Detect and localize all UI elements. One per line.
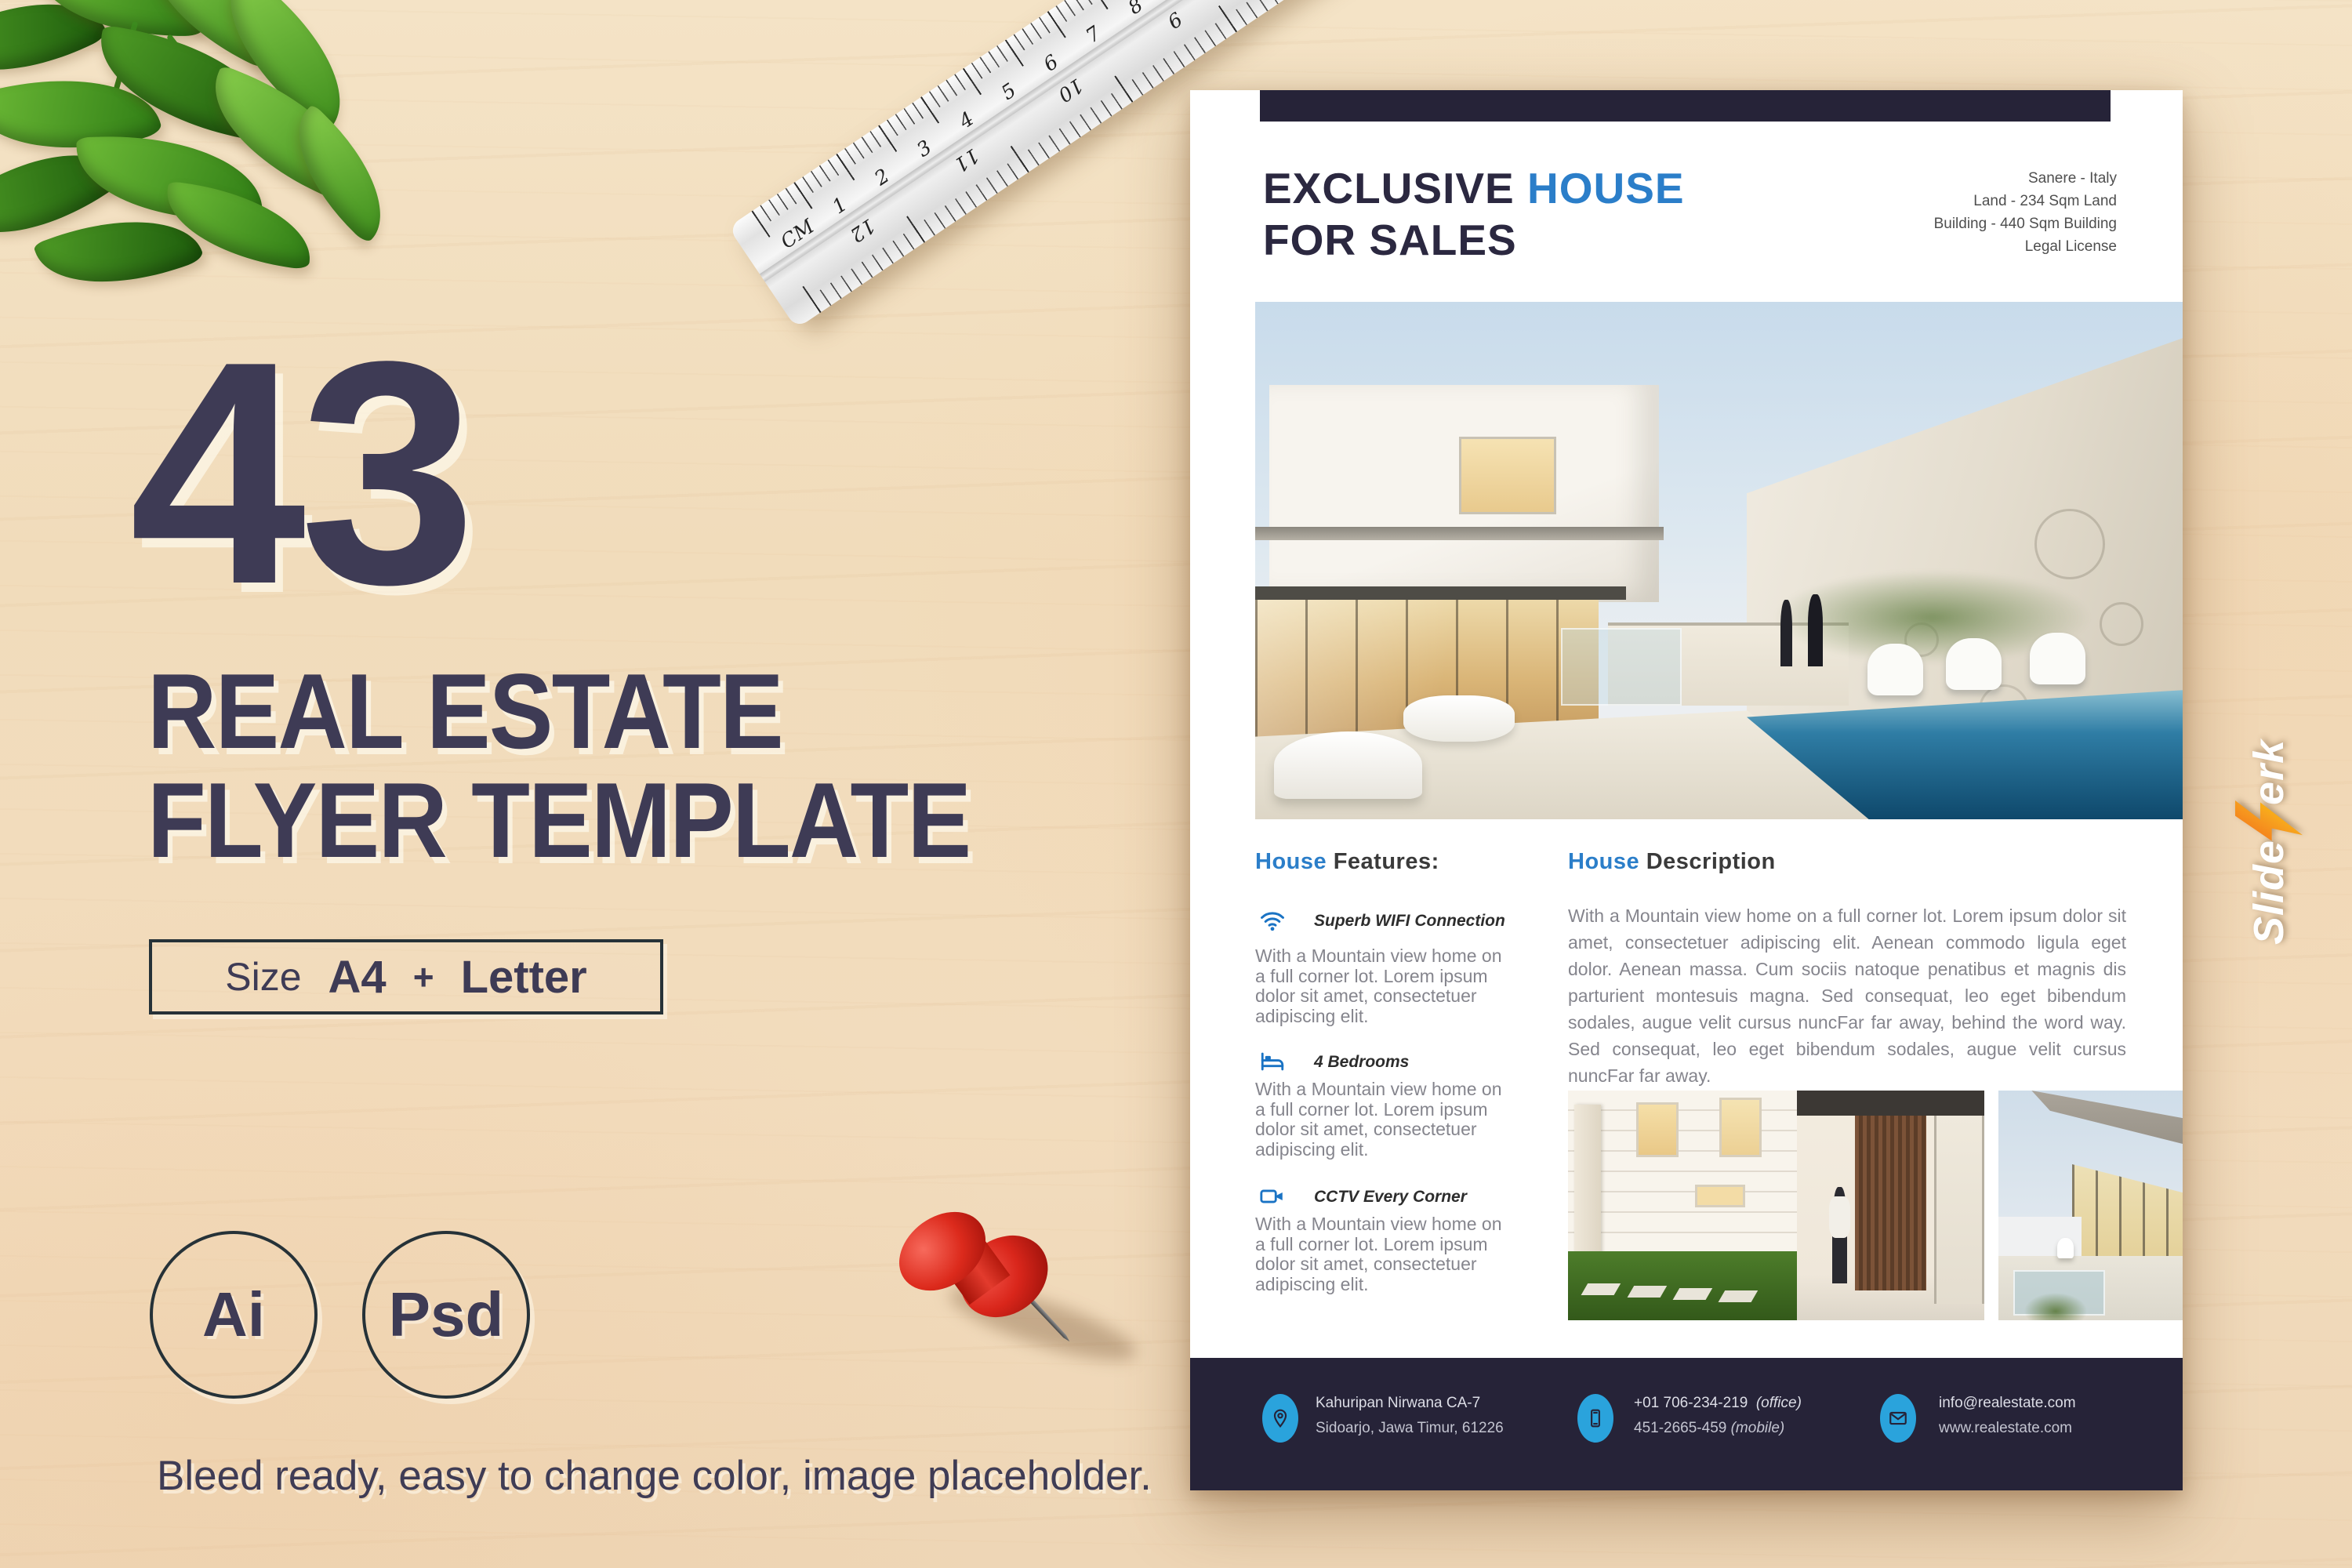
white-furniture	[1403, 695, 1515, 742]
location-icon	[1262, 1394, 1298, 1443]
description-heading: House Description	[1568, 849, 1776, 875]
footer-address: Kahuripan Nirwana CA-7 Sidoarjo, Jawa Ti…	[1316, 1391, 1504, 1441]
white-chair	[2057, 1238, 2074, 1258]
promo-title: REAL ESTATE FLYER TEMPLATE	[147, 657, 970, 875]
size-label: Size	[225, 954, 301, 1000]
features-heading: House Features:	[1255, 849, 1439, 875]
facade-siding	[1568, 1091, 1797, 1256]
big-number: 43	[129, 314, 470, 631]
phone-icon	[1577, 1394, 1613, 1443]
feature-title: CCTV Every Corner	[1314, 1188, 1467, 1207]
gallery-photo-1	[1568, 1091, 1984, 1320]
entry-ceiling	[1797, 1091, 1984, 1116]
basil-plant	[0, 0, 463, 346]
feature-title: 4 Bedrooms	[1314, 1053, 1409, 1072]
brand-watermark: Slide erk	[2241, 647, 2297, 945]
upper-window	[1459, 437, 1556, 514]
bed-icon	[1259, 1048, 1286, 1075]
glass-balustrade	[1561, 628, 1682, 706]
cctv-icon	[1259, 1183, 1286, 1210]
promo-title-line2: FLYER TEMPLATE	[147, 766, 970, 875]
property-info: Sanere - Italy Land - 234 Sqm Land Build…	[1934, 167, 2117, 258]
wifi-icon	[1259, 907, 1286, 934]
lounge-chair	[1867, 644, 1923, 695]
white-furniture	[1274, 731, 1422, 799]
hero-photo	[1255, 302, 2183, 819]
stepping-stone	[1581, 1283, 1621, 1295]
size-separator: +	[413, 956, 434, 998]
footer-email: info@realestate.com www.realestate.com	[1939, 1391, 2076, 1441]
wood-slat-door	[1855, 1116, 1926, 1290]
size-format-letter: Letter	[461, 951, 587, 1004]
size-format-a4: A4	[328, 951, 387, 1004]
flyer-title-line2: FOR SALES	[1263, 214, 1685, 266]
person-figure	[1808, 594, 1823, 666]
warm-window	[1722, 1100, 1759, 1155]
flyer-title-accent: HOUSE	[1527, 164, 1685, 212]
flyer-top-bar	[1260, 90, 2111, 122]
property-info-land: Land - 234 Sqm Land	[1934, 190, 2117, 212]
flyer-page: EXCLUSIVE HOUSE FOR SALES Sanere - Italy…	[1190, 90, 2183, 1490]
stepping-stone	[1719, 1290, 1759, 1302]
feature-title: Superb WIFI Connection	[1314, 912, 1505, 931]
lounge-chair	[2030, 633, 2085, 684]
feature-desc: With a Mountain view home on a full corn…	[1255, 1080, 1504, 1160]
property-info-license: Legal License	[1934, 235, 2117, 258]
brand-prefix: Slide	[2245, 840, 2293, 945]
badge-ai: Ai	[150, 1231, 318, 1399]
flyer-title: EXCLUSIVE HOUSE FOR SALES	[1263, 162, 1685, 266]
promo-title-line1: REAL ESTATE	[147, 657, 970, 766]
gallery-photo-2	[1998, 1091, 2183, 1320]
eave-line	[1255, 586, 1626, 600]
warm-window	[1639, 1105, 1676, 1155]
badge-psd: Psd	[362, 1231, 530, 1399]
lounge-chair	[1946, 638, 2002, 690]
stepping-stone	[1673, 1288, 1713, 1300]
shrub	[2024, 1293, 2087, 1320]
warm-window	[1697, 1187, 1743, 1205]
person-shirt	[1829, 1196, 1850, 1238]
feature-desc: With a Mountain view home on a full corn…	[1255, 946, 1504, 1026]
footnote-text: Bleed ready, easy to change color, image…	[157, 1452, 1152, 1500]
property-info-location: Sanere - Italy	[1934, 167, 2117, 190]
flyer-footer: Kahuripan Nirwana CA-7 Sidoarjo, Jawa Ti…	[1190, 1358, 2183, 1490]
brand-suffix: erk	[2245, 739, 2293, 805]
wall-circle-relief	[2100, 602, 2143, 646]
description-body: With a Mountain view home on a full corn…	[1568, 902, 2126, 1089]
footer-phones: +01 706-234-219 (office) 451-2665-459 (m…	[1634, 1391, 1802, 1441]
mail-icon	[1880, 1394, 1916, 1443]
stepping-stone	[1627, 1286, 1667, 1298]
person-figure	[1780, 600, 1792, 667]
flyer-title-part1: EXCLUSIVE	[1263, 164, 1515, 212]
lightning-bolt-icon	[2235, 800, 2303, 843]
wall-circle-relief	[2034, 509, 2105, 579]
property-info-building: Building - 440 Sqm Building	[1934, 212, 2117, 235]
size-box: Size A4 + Letter	[149, 939, 663, 1014]
glass-panel	[1934, 1116, 1984, 1304]
roof-slab	[1255, 527, 1664, 540]
feature-desc: With a Mountain view home on a full corn…	[1255, 1214, 1504, 1294]
